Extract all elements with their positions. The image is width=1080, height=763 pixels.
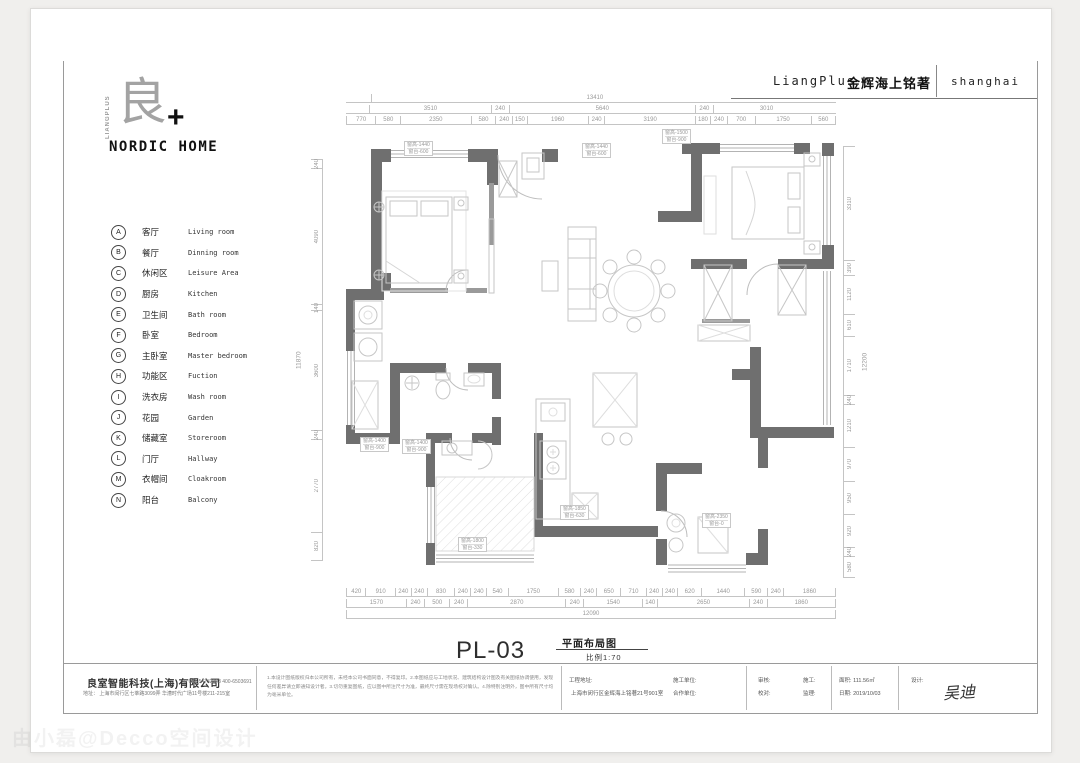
legend-item: H 功能区 Fuction — [111, 366, 247, 387]
company-tel: ✆ 021-54732293 400-6503691 — [183, 679, 252, 685]
designer-label: 设计: — [911, 676, 924, 684]
legend-en-label: Bedroom — [188, 331, 218, 339]
legend-en-label: Hallway — [188, 455, 218, 463]
legend-cn-label: 花园 — [142, 412, 176, 424]
company-address: 地址： 上海市闵行区七莘路3099弄 华漕时代广场11号楼211-215室 — [83, 690, 230, 697]
logo-plus: + — [167, 103, 185, 133]
legend-key-badge: H — [111, 369, 126, 384]
plan-name: 平面布局图 — [562, 635, 617, 650]
plan-title-divider — [556, 649, 648, 650]
logo: LIANGPLUS 良 + NORDIC HOME — [101, 67, 301, 167]
dim-left-overall: 11870 — [293, 159, 305, 561]
window-tag: 窗高-2350窗台-0 — [702, 513, 731, 528]
legend-key-badge: E — [111, 307, 126, 322]
brand-text: LiangPlus — [773, 74, 856, 88]
legend-cn-label: 主卧室 — [142, 350, 176, 362]
logo-vertical-text: LIANGPLUS — [105, 95, 111, 139]
legend-key-badge: N — [111, 493, 126, 508]
legend-key-badge: F — [111, 328, 126, 343]
logo-glyph: 良 — [117, 77, 167, 127]
dim-bottom-overall: 12090 — [346, 609, 836, 619]
legend-cn-label: 客厅 — [142, 226, 176, 238]
legend-list: A 客厅 Living room B 餐厅 Dinning room C 休闲区… — [111, 222, 247, 510]
legend-key-badge: C — [111, 266, 126, 281]
legend-cn-label: 卧室 — [142, 329, 176, 341]
page: { "header": { "brand": "LiangPlus", "pro… — [0, 0, 1080, 763]
window-tag: 窗高-1850窗台-630 — [560, 505, 589, 520]
window-tag: 窗高-1440窗台-600 — [582, 143, 611, 158]
title-block: 良室智能科技(上海)有限公司 ✆ 021-54732293 400-650369… — [63, 663, 1038, 713]
window-tag: 窗高-1800窗台-330 — [458, 537, 487, 552]
watermark: 由小磊@Decco空间设计 — [12, 722, 258, 751]
legend-en-label: Wash room — [188, 393, 226, 401]
legend-item: K 储藏室 Storeroom — [111, 428, 247, 449]
date-field: 日期: 2019/10/03 — [839, 689, 881, 697]
legend-cn-label: 洗衣房 — [142, 391, 176, 403]
legend-item: F 卧室 Bedroom — [111, 325, 247, 346]
logo-wordmark: NORDIC HOME — [109, 139, 218, 155]
drawing-sheet: LiangPlus 金辉海上铭著 shanghai LIANGPLUS 良 + … — [30, 8, 1052, 753]
floor-plan: 窗高-1440窗台-600窗高-1440窗台-600窗高-1500窗台-900窗… — [346, 141, 836, 576]
builder-label: 施工单位: — [673, 676, 697, 684]
legend-en-label: Bath room — [188, 311, 226, 319]
legend-key-badge: L — [111, 451, 126, 466]
drawing-notes: 1.本设计图纸版权归本公司所有，未经本公司书面同意，不得复印。2.本图纸应与工地… — [267, 675, 555, 701]
legend-key-badge: I — [111, 390, 126, 405]
window-tag: 窗高-1500窗台-900 — [662, 129, 691, 144]
legend-item: J 花园 Garden — [111, 407, 247, 428]
frame-left-line — [63, 61, 64, 713]
plan-number: PL-03 — [456, 637, 525, 665]
legend-item: A 客厅 Living room — [111, 222, 247, 243]
site-label: 工程地址: — [569, 676, 593, 684]
legend-en-label: Balcony — [188, 496, 218, 504]
legend-cn-label: 休闲区 — [142, 267, 176, 279]
frame-bottom-line — [63, 713, 1038, 714]
audit-label: 审核: — [758, 676, 771, 684]
plan-scale: 比例1:70 — [586, 652, 622, 663]
legend-item: L 门厅 Hallway — [111, 449, 247, 470]
legend-cn-label: 衣帽间 — [142, 473, 176, 485]
dim-right-overall: 12200 — [859, 146, 871, 578]
legend-cn-label: 功能区 — [142, 370, 176, 382]
supervise-label: 监理: — [803, 689, 816, 697]
construct-label: 施工: — [803, 676, 816, 684]
designer-signature: 吴迪 — [942, 678, 976, 704]
window-tag: 窗高-1440窗台-600 — [404, 141, 433, 156]
dim-bottom-inner: 4209102402408302402405401750580240650710… — [346, 587, 836, 597]
legend-item: B 餐厅 Dinning room — [111, 243, 247, 264]
legend-key-badge: M — [111, 472, 126, 487]
dim-top-inner: 7705802350580240150196024031901802407001… — [346, 115, 836, 125]
legend-item: C 休闲区 Leisure Area — [111, 263, 247, 284]
legend-item: M 衣帽间 Cloakroom — [111, 469, 247, 490]
legend-en-label: Garden — [188, 414, 213, 422]
legend-en-label: Leisure Area — [188, 269, 239, 277]
legend-cn-label: 餐厅 — [142, 247, 176, 259]
legend-item: G 主卧室 Master bedroom — [111, 346, 247, 367]
legend-key-badge: G — [111, 348, 126, 363]
dim-left-chain: 240409014036002402770820 — [311, 159, 323, 561]
legend-en-label: Master bedroom — [188, 352, 247, 360]
legend-cn-label: 储藏室 — [142, 432, 176, 444]
partner-label: 合作单位: — [673, 689, 697, 697]
legend-en-label: Storeroom — [188, 434, 226, 442]
legend-cn-label: 门厅 — [142, 453, 176, 465]
area-field: 面积: 111.56㎡ — [839, 676, 875, 684]
legend-key-badge: J — [111, 410, 126, 425]
dim-top-mid: 351024056402403010 — [346, 104, 836, 114]
legend-cn-label: 阳台 — [142, 494, 176, 506]
legend-key-badge: D — [111, 287, 126, 302]
proof-label: 校对: — [758, 689, 771, 697]
legend-key-badge: A — [111, 225, 126, 240]
legend-en-label: Fuction — [188, 372, 218, 380]
legend-item: E 卫生间 Bath room — [111, 304, 247, 325]
legend-key-badge: K — [111, 431, 126, 446]
window-tag: 窗高-1400窗台-900 — [402, 439, 431, 454]
legend-key-badge: B — [111, 245, 126, 260]
legend-en-label: Dinning room — [188, 249, 239, 257]
site-value: 上海市闵行区金辉海上铭著21号901室 — [571, 689, 663, 697]
legend-item: D 厨房 Kitchen — [111, 284, 247, 305]
legend-en-label: Cloakroom — [188, 475, 226, 483]
city-text: shanghai — [951, 75, 1020, 88]
frame-right-line — [1037, 61, 1038, 713]
legend-item: N 阳台 Balcony — [111, 490, 247, 511]
legend-cn-label: 卫生间 — [142, 309, 176, 321]
legend-en-label: Kitchen — [188, 290, 218, 298]
dim-bottom-mid: 15702405002402870240154014026502401860 — [346, 598, 836, 608]
window-tags-layer: 窗高-1440窗台-600窗高-1440窗台-600窗高-1500窗台-900窗… — [346, 141, 836, 576]
project-name: 金辉海上铭著 — [847, 73, 931, 92]
legend-en-label: Living room — [188, 228, 234, 236]
dim-top-overall: 13410 — [346, 93, 836, 103]
legend-item: I 洗衣房 Wash room — [111, 387, 247, 408]
legend-cn-label: 厨房 — [142, 288, 176, 300]
dim-right-chain: 3310390112061017102401210970950920240580 — [843, 146, 855, 578]
window-tag: 窗高-1400窗台-900 — [360, 437, 389, 452]
header-divider — [936, 65, 937, 97]
